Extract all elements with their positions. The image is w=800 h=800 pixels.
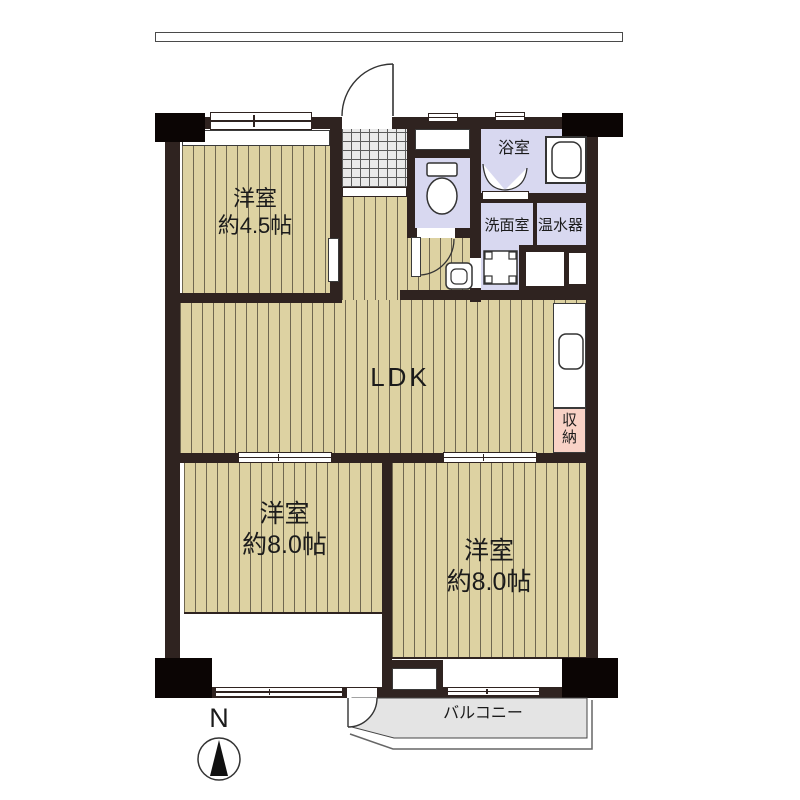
bath-door-threshold <box>482 191 529 200</box>
sliding-door-bedroom-small <box>328 238 339 282</box>
toilet-doorway <box>417 228 455 238</box>
ldk-name: LDK <box>300 362 500 394</box>
wall-right <box>586 117 598 698</box>
balcony-door-arc <box>348 698 377 727</box>
opening-ldk-bedroom-se <box>443 452 537 463</box>
wall-left <box>165 117 180 698</box>
label-bath: 浴室 <box>483 139 545 159</box>
bedroom-sw-name: 洋室 <box>187 499 382 530</box>
pillar-southwest <box>155 658 212 698</box>
label-ldk: LDK <box>300 362 500 394</box>
washroom-doorway <box>470 258 481 288</box>
compass <box>198 738 240 780</box>
bedroom-small-size: 約4.5帖 <box>180 213 330 240</box>
bedroom-sw-size: 約8.0帖 <box>187 530 382 561</box>
wall-bedroom-sw-floor-edge <box>184 612 382 614</box>
entry-opening <box>342 117 392 129</box>
balcony-name: バルコニー <box>403 704 563 724</box>
floor-genkan-tile <box>342 125 407 187</box>
pipe-space-box-2 <box>569 253 586 284</box>
floor-plan: 洋室 約4.5帖 LDK 洋室 約8.0帖 洋室 約8.0帖 浴室 洗面室 温水… <box>0 0 800 800</box>
sliding-door-track <box>333 194 335 238</box>
washroom-name: 洗面室 <box>481 217 533 235</box>
entry-door-arc <box>342 64 393 116</box>
label-balcony: バルコニー <box>403 704 563 724</box>
balcony-doorway <box>347 688 377 698</box>
wall-hall-washroom <box>470 117 481 258</box>
pillar-southeast <box>562 658 618 698</box>
floor-toilet <box>415 158 470 228</box>
window-balcony <box>447 687 540 696</box>
wall-ldk-north-east <box>400 290 586 300</box>
floor-hallway <box>342 197 407 303</box>
kitchen-counter <box>553 303 586 408</box>
label-bedroom-se: 洋室 約8.0帖 <box>392 536 586 597</box>
wall-toilet-shelf-line <box>415 150 470 158</box>
compass-n: N <box>203 702 235 735</box>
opening-ldk-bedroom-sw <box>238 452 332 463</box>
pipe-space-box-1 <box>526 252 564 286</box>
site-boundary-line <box>155 32 623 42</box>
window-se-small <box>392 668 437 690</box>
label-bedroom-sw: 洋室 約8.0帖 <box>187 499 382 560</box>
bedroom-small-name: 洋室 <box>180 186 330 213</box>
wall-bedroom-small-south <box>178 293 342 303</box>
label-bedroom-small: 洋室 約4.5帖 <box>180 186 330 240</box>
toilet-door-leaf <box>411 237 421 277</box>
wall-bedroom-se-floor-edge <box>392 657 586 659</box>
bath-name: 浴室 <box>483 139 545 159</box>
storage-name: 収納 <box>561 413 579 446</box>
label-compass-north: N <box>203 702 235 735</box>
window-bedroom-small-north <box>210 112 312 130</box>
bedroom-se-name: 洋室 <box>392 536 586 567</box>
pillar-northwest <box>155 113 205 142</box>
window-southwest <box>215 687 343 697</box>
window-bath-north <box>495 112 525 121</box>
pillar-northeast <box>562 113 623 137</box>
label-washroom: 洗面室 <box>481 217 533 235</box>
window-toilet-north <box>428 113 458 122</box>
toilet-shelf <box>415 129 470 150</box>
genkan-step <box>342 187 407 197</box>
label-water-heater: 温水器 <box>535 217 586 235</box>
wall-hall-toilet <box>407 117 415 238</box>
bedroom-se-size: 約8.0帖 <box>392 567 586 598</box>
label-storage: 収納 <box>553 413 586 447</box>
water-heater-name: 温水器 <box>535 217 586 235</box>
